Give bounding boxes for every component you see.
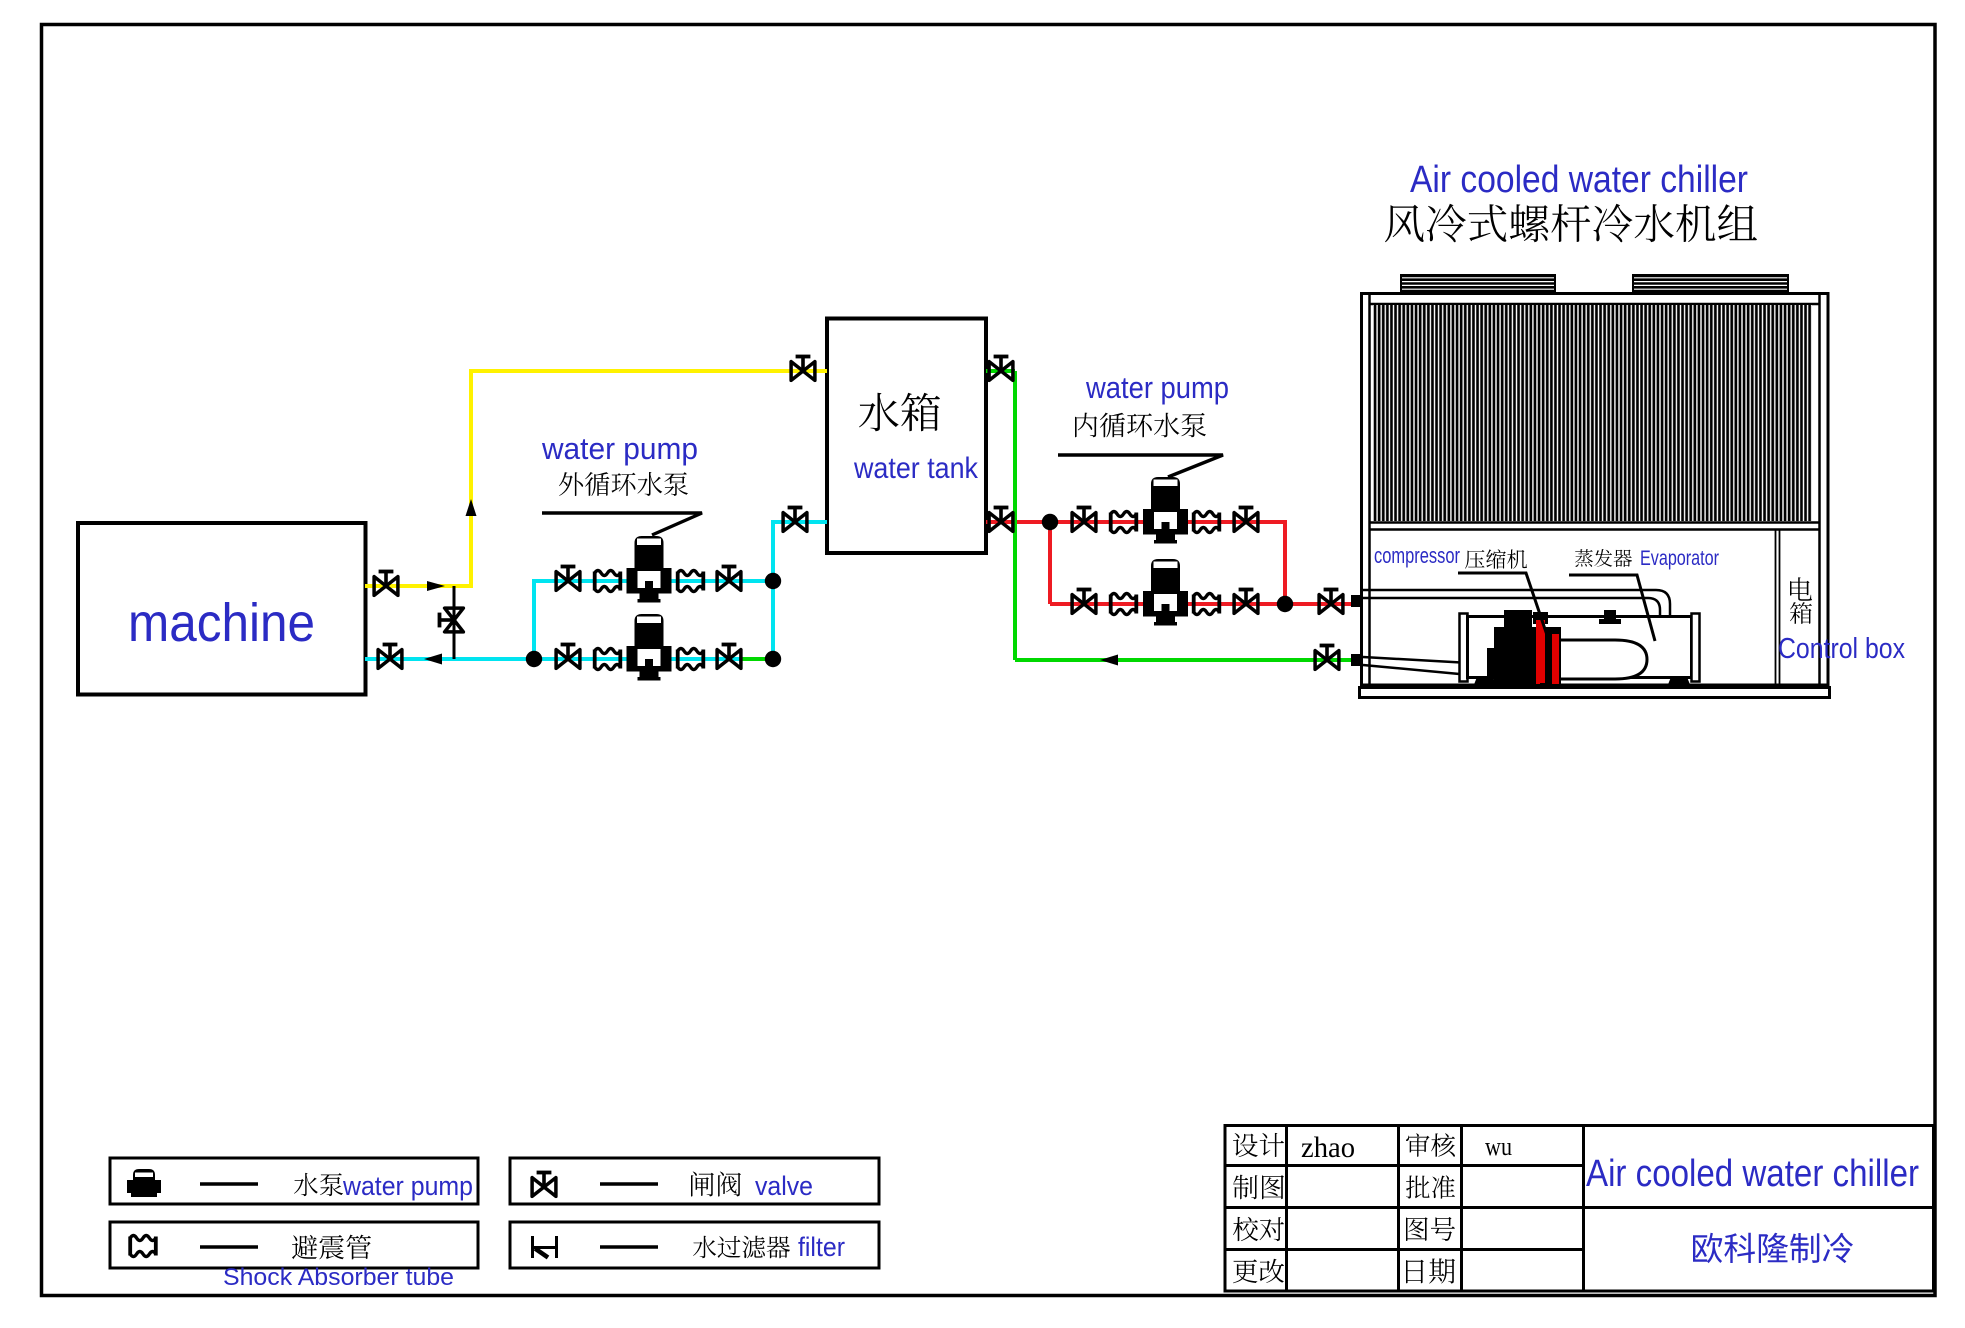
svg-text:water pump: water pump: [541, 431, 698, 466]
svg-text:Shock Absorber tube: Shock Absorber tube: [223, 1264, 454, 1291]
svg-text:valve: valve: [755, 1171, 813, 1201]
svg-text:water pump: water pump: [342, 1171, 473, 1201]
svg-text:zhao: zhao: [1301, 1131, 1355, 1164]
svg-text:Air cooled water chiller: Air cooled water chiller: [1410, 159, 1748, 201]
svg-text:Control box: Control box: [1778, 633, 1905, 665]
svg-text:Evaporator: Evaporator: [1640, 547, 1719, 570]
svg-text:water tank: water tank: [853, 452, 979, 485]
svg-text:Air cooled water chiller: Air cooled water chiller: [1586, 1153, 1919, 1195]
svg-text:water pump: water pump: [1085, 370, 1229, 405]
svg-text:filter: filter: [798, 1232, 845, 1262]
svg-text:compressor: compressor: [1374, 543, 1460, 568]
svg-text:machine: machine: [128, 593, 315, 653]
svg-text:wu: wu: [1485, 1132, 1512, 1161]
